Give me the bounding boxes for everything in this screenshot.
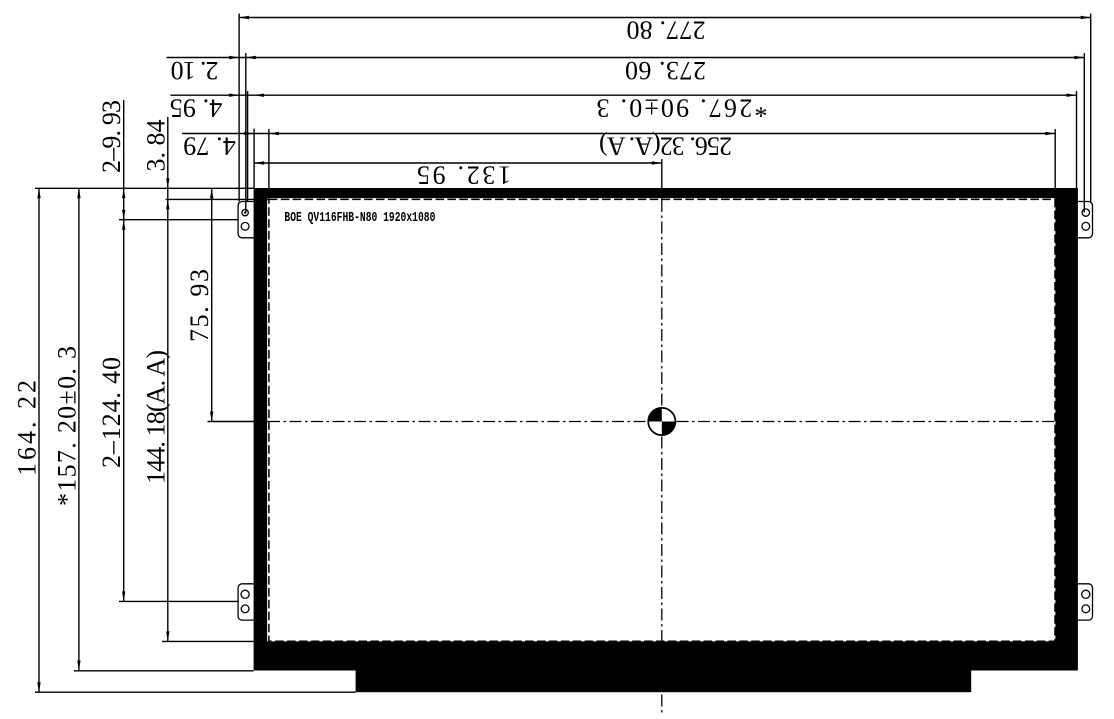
- svg-text:256. 32(A. A): 256. 32(A. A): [599, 132, 732, 161]
- svg-text:144. 18(A. A): 144. 18(A. A): [141, 350, 170, 484]
- svg-text:2–124. 40: 2–124. 40: [97, 357, 126, 468]
- svg-text:2. 10: 2. 10: [171, 56, 219, 85]
- svg-text:273. 60: 273. 60: [625, 56, 706, 85]
- svg-text:BOE QV116FHB-N80 1920x1080: BOE QV116FHB-N80 1920x1080: [284, 211, 435, 226]
- svg-text:277. 80: 277. 80: [627, 16, 706, 45]
- svg-text:*157. 20±0. 3: *157. 20±0. 3: [52, 346, 81, 506]
- svg-text:75. 93: 75. 93: [185, 269, 214, 342]
- svg-text:*267. 90±0. 3: *267. 90±0. 3: [597, 93, 768, 122]
- svg-text:4. 79: 4. 79: [183, 132, 236, 161]
- svg-text:2–9. 93: 2–9. 93: [97, 100, 126, 173]
- svg-text:3. 84: 3. 84: [141, 120, 170, 172]
- svg-text:4. 95: 4. 95: [170, 93, 223, 122]
